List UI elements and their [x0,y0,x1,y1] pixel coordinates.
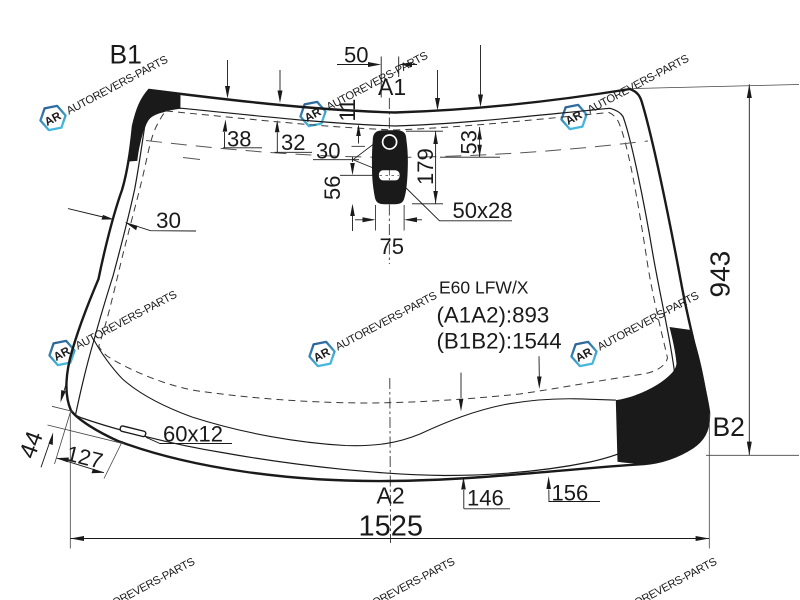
svg-text:146: 146 [467,486,504,511]
svg-text:(B1B2):1544: (B1B2):1544 [437,329,562,354]
svg-text:50x28: 50x28 [453,198,513,223]
svg-text:50: 50 [344,43,368,68]
svg-text:60x12: 60x12 [163,422,223,447]
svg-text:53: 53 [457,130,482,154]
svg-text:A2: A2 [377,483,405,509]
svg-text:A1: A1 [378,74,406,100]
svg-text:11: 11 [335,99,360,122]
svg-text:56: 56 [320,176,345,200]
svg-text:(A1A2):893: (A1A2):893 [437,303,550,328]
svg-text:B1: B1 [110,40,142,70]
svg-text:156: 156 [552,481,589,506]
svg-text:1525: 1525 [359,511,424,543]
svg-text:E60 LFW/X: E60 LFW/X [439,278,529,298]
svg-text:943: 943 [705,251,736,298]
svg-text:30: 30 [316,139,340,164]
svg-text:38: 38 [227,127,251,152]
svg-text:32: 32 [281,130,305,155]
svg-text:B2: B2 [713,412,745,442]
svg-text:179: 179 [413,148,438,185]
svg-text:75: 75 [380,234,404,259]
svg-text:30: 30 [156,208,181,233]
